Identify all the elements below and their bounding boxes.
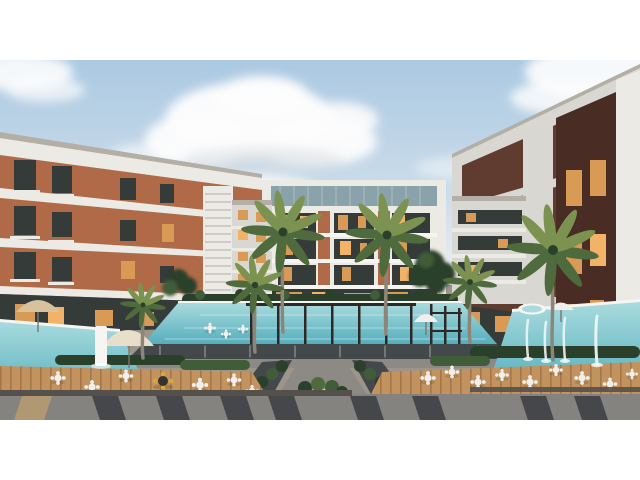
property-render-photo: Dusk aerial render of a modern residenti… xyxy=(0,60,640,420)
render-scene xyxy=(0,60,640,420)
promenade-pavement xyxy=(0,387,640,420)
page: Dusk aerial render of a modern residenti… xyxy=(0,0,640,480)
left-wing-louver-panel xyxy=(203,186,233,296)
main-pool xyxy=(143,301,497,344)
